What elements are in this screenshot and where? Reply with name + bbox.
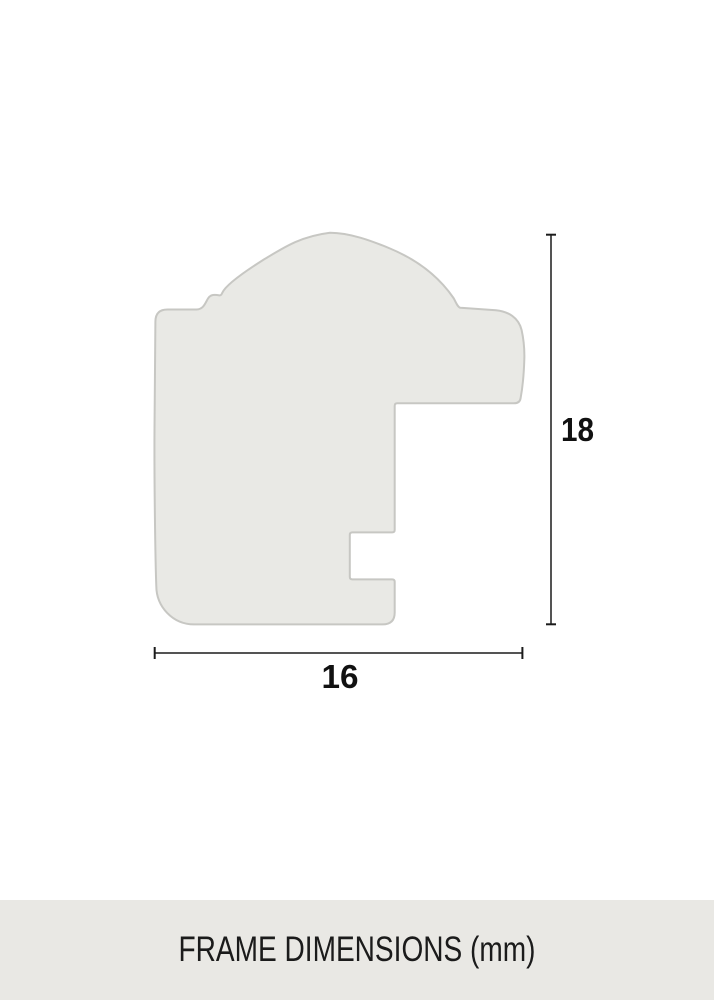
svg-text:FRAME DIMENSIONS (mm): FRAME DIMENSIONS (mm) — [179, 930, 536, 969]
svg-text:16: 16 — [322, 658, 359, 695]
svg-text:18: 18 — [561, 411, 594, 448]
